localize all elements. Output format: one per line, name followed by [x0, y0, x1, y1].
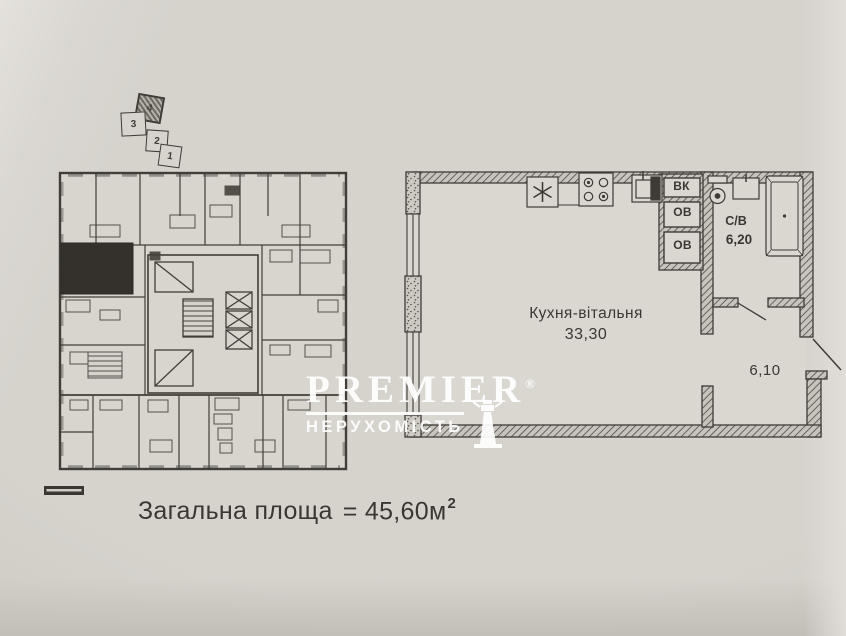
locator-square-1-num: 1 — [166, 150, 173, 162]
stair-block — [183, 299, 213, 337]
total-area-label: Загальна площа — [138, 497, 333, 525]
lighthouse-icon — [470, 398, 504, 448]
sink-icon — [632, 171, 662, 202]
entrance-door — [813, 339, 841, 370]
total-area-text: Загальна площа= 45,60м2 — [138, 497, 455, 526]
room-label-kitchen-living: Кухня-вітальня — [506, 306, 666, 322]
shaft-label-vk: ВК — [663, 180, 700, 193]
bathroom-label: С/В — [707, 215, 765, 228]
bathroom-area: 6,20 — [710, 233, 768, 247]
fridge-icon — [527, 177, 558, 207]
registered-mark: ® — [525, 376, 535, 391]
hall-area: 6,10 — [734, 363, 796, 379]
room-area-kitchen-living: 33,30 — [506, 327, 666, 344]
locator-square-1: 1 — [158, 144, 183, 169]
scale-bar — [44, 486, 84, 495]
locator-square-2-num: 2 — [154, 135, 160, 146]
building-overview-plan — [36, 165, 352, 501]
locator-square-4-num: 4 — [146, 103, 153, 115]
total-area-value: = 45,60м — [343, 497, 447, 525]
washbasin-icon — [733, 174, 759, 199]
locator-square-3: 3 — [120, 111, 146, 136]
bathtub-icon — [766, 176, 803, 256]
watermark: PREMIER® НЕРУХОМІСТЬ — [306, 370, 521, 448]
shaft-label-ov-1: ОВ — [664, 206, 701, 219]
window-left-1 — [407, 214, 419, 276]
shaft-label-ov-2: ОВ — [664, 239, 701, 252]
highlighted-unit — [61, 243, 133, 294]
floor-plan-photo: 4 3 2 1 — [0, 0, 846, 636]
locator-square-3-num: 3 — [130, 118, 136, 129]
stove-icon — [579, 173, 613, 206]
brand-subtitle: НЕРУХОМІСТЬ — [306, 418, 464, 437]
total-area-sup: 2 — [447, 495, 456, 512]
